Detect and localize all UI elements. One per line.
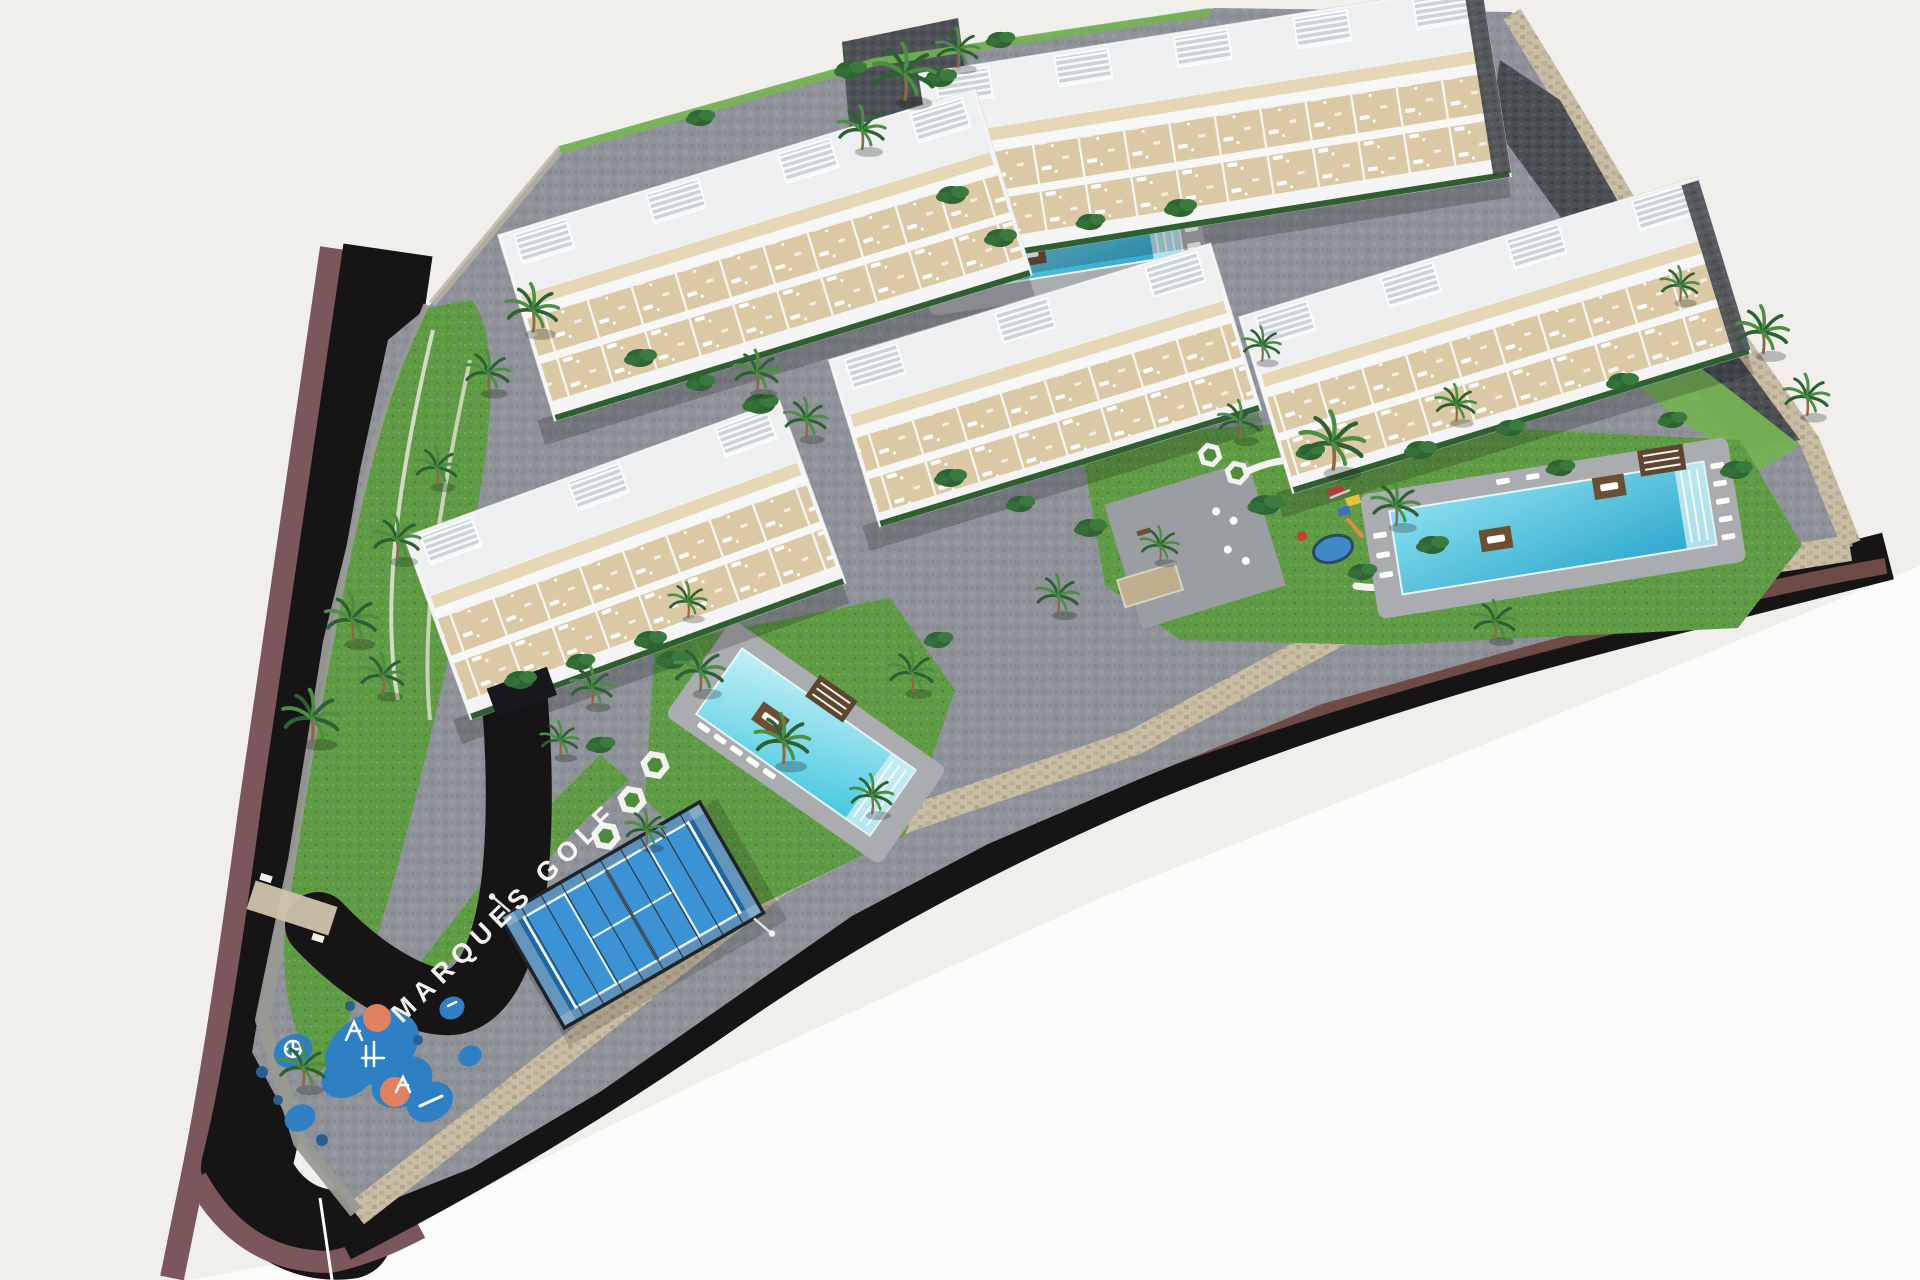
play-dot [273,1095,283,1105]
play-dot [413,1035,423,1045]
play-dot [345,1001,355,1011]
aerial-render-scene: MARQUES GOLF [0,0,1920,1280]
play-ball [1297,531,1307,541]
play-dot [256,1066,268,1078]
play-dot [316,1134,328,1146]
site-plan-canvas: MARQUES GOLF [0,0,1920,1280]
